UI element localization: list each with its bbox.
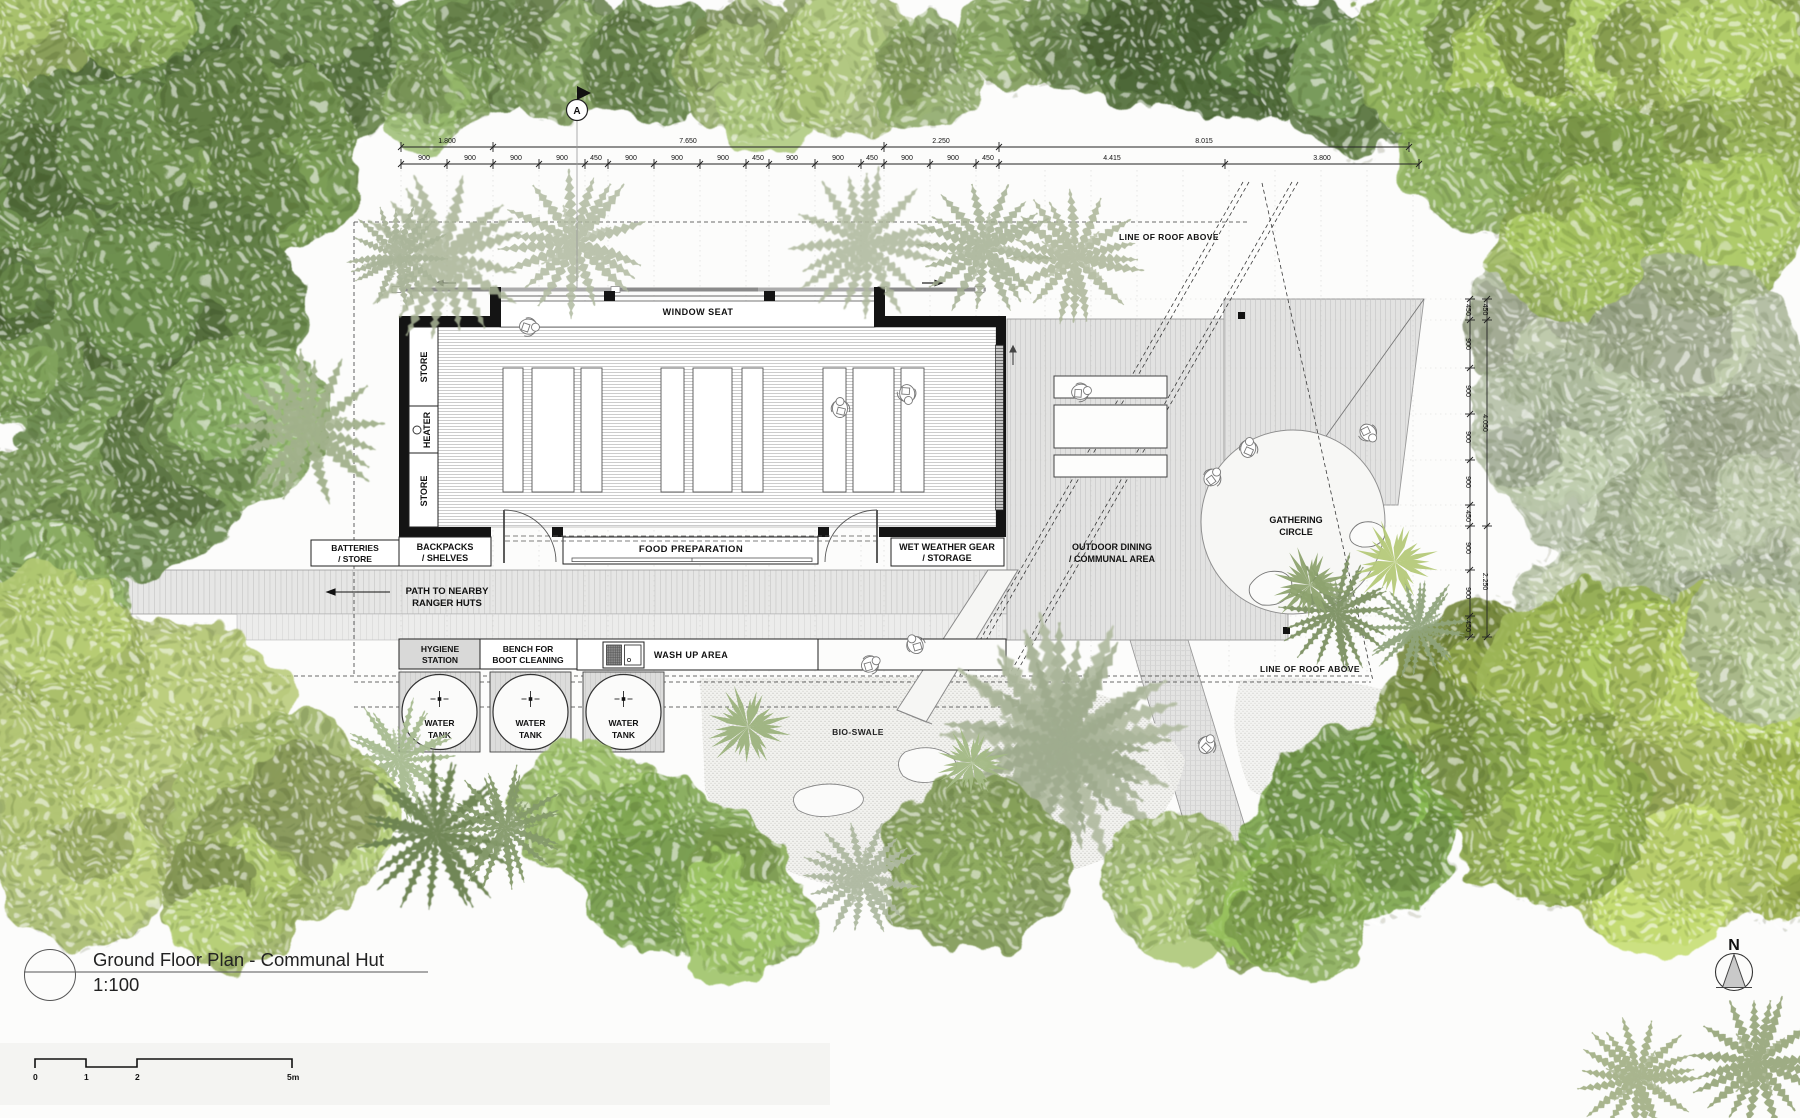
svg-text:900: 900 [1464,476,1471,488]
svg-text:BATTERIES: BATTERIES [331,543,379,553]
svg-text:900: 900 [947,155,959,162]
svg-text:1: 1 [84,1072,89,1082]
svg-text:900: 900 [556,155,568,162]
svg-text:450: 450 [752,155,764,162]
svg-text:450: 450 [1464,620,1471,632]
svg-text:HYGIENE: HYGIENE [421,644,460,654]
svg-text:BACKPACKS: BACKPACKS [417,542,474,552]
svg-text:450: 450 [1464,304,1471,316]
svg-text:900: 900 [510,155,522,162]
svg-text:900: 900 [901,155,913,162]
svg-text:450: 450 [982,155,994,162]
svg-text:WET WEATHER GEAR: WET WEATHER GEAR [899,542,995,552]
svg-text:900: 900 [832,155,844,162]
svg-text:5m: 5m [287,1072,300,1082]
svg-text:2: 2 [135,1072,140,1082]
svg-text:LINE OF ROOF ABOVE: LINE OF ROOF ABOVE [1260,664,1360,674]
svg-text:7.650: 7.650 [679,138,697,145]
svg-text:4.050: 4.050 [1481,414,1488,432]
svg-text:A: A [573,106,580,117]
svg-text:TANK: TANK [612,730,636,740]
svg-text:Ground Floor Plan - Communal H: Ground Floor Plan - Communal Hut [93,949,384,970]
svg-text:2.250: 2.250 [932,138,950,145]
svg-text:WATER: WATER [515,718,545,728]
svg-text:0: 0 [33,1072,38,1082]
svg-text:OUTDOOR DINING: OUTDOOR DINING [1072,542,1152,552]
svg-text:/ STORAGE: / STORAGE [922,553,971,563]
svg-text:BOOT CLEANING: BOOT CLEANING [492,655,564,665]
svg-text:900: 900 [418,155,430,162]
svg-text:900: 900 [1464,385,1471,397]
svg-text:LINE OF ROOF ABOVE: LINE OF ROOF ABOVE [1119,232,1219,242]
svg-text:BIO-SWALE: BIO-SWALE [832,727,884,737]
svg-text:900: 900 [1464,542,1471,554]
svg-text:900: 900 [671,155,683,162]
svg-text:HEATER: HEATER [422,411,432,448]
svg-text:900: 900 [1464,431,1471,443]
svg-text:450: 450 [866,155,878,162]
svg-text:FOOD PREPARATION: FOOD PREPARATION [639,544,743,555]
svg-text:450: 450 [1464,510,1471,522]
svg-text:4.415: 4.415 [1103,155,1121,162]
svg-text:CIRCLE: CIRCLE [1279,527,1313,537]
svg-text:GATHERING: GATHERING [1269,515,1322,525]
svg-text:PATH TO NEARBY: PATH TO NEARBY [406,586,490,597]
svg-text:900: 900 [625,155,637,162]
svg-text:1.800: 1.800 [438,138,456,145]
svg-text:/ COMMUNAL AREA: / COMMUNAL AREA [1069,554,1155,564]
svg-text:1:100: 1:100 [93,974,139,995]
svg-text:WATER: WATER [608,718,638,728]
svg-text:STORE: STORE [419,352,429,383]
svg-text:/ SHELVES: / SHELVES [422,553,468,563]
svg-text:450: 450 [590,155,602,162]
svg-text:STORE: STORE [419,476,429,507]
svg-text:STATION: STATION [422,655,458,665]
svg-text:WINDOW SEAT: WINDOW SEAT [663,307,734,317]
svg-text:900: 900 [464,155,476,162]
svg-text:3.800: 3.800 [1313,155,1331,162]
svg-text:N: N [1728,937,1740,954]
svg-text:/ STORE: / STORE [338,554,372,564]
svg-text:900: 900 [786,155,798,162]
svg-text:RANGER HUTS: RANGER HUTS [412,598,482,609]
svg-text:BENCH FOR: BENCH FOR [503,644,554,654]
svg-text:900: 900 [1464,587,1471,599]
svg-text:WATER: WATER [424,718,454,728]
svg-text:450: 450 [1481,304,1488,316]
svg-text:8.015: 8.015 [1195,138,1213,145]
svg-text:WASH UP AREA: WASH UP AREA [654,650,728,660]
svg-text:2.250: 2.250 [1481,573,1488,591]
svg-text:900: 900 [717,155,729,162]
svg-text:TANK: TANK [519,730,543,740]
svg-text:900: 900 [1464,338,1471,350]
